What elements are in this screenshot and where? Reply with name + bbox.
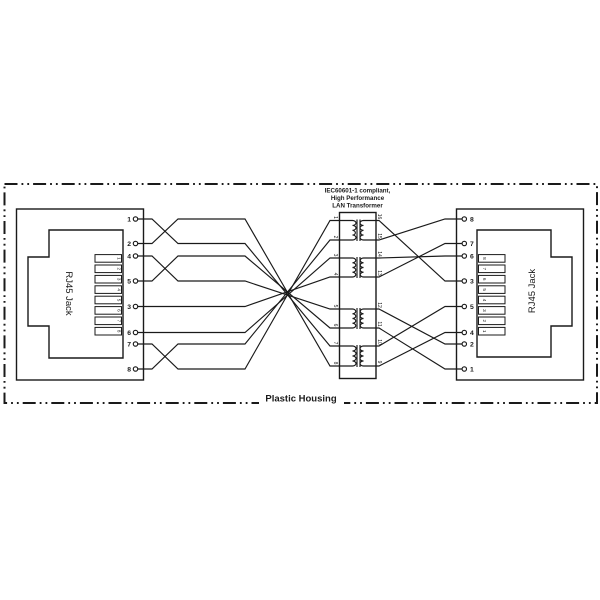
right-slot-number-5: 5 bbox=[482, 288, 487, 291]
left-slot-number-7: 7 bbox=[117, 320, 122, 323]
svg-text:2: 2 bbox=[332, 236, 338, 239]
core-lines bbox=[357, 220, 360, 242]
title-line-2: High Performance bbox=[331, 195, 385, 202]
right-jack-terminal-numbers: 8 7 6 3 5 4 2 1 bbox=[470, 216, 474, 373]
left-slot-number-8: 8 bbox=[117, 330, 122, 333]
core-lines bbox=[357, 308, 360, 329]
left-slot-number-1: 1 bbox=[117, 257, 122, 260]
svg-text:1: 1 bbox=[332, 216, 338, 219]
title-line-1: IEC60601-1 compliant, bbox=[325, 188, 391, 195]
right-wiring bbox=[376, 219, 462, 369]
right-terminal-1: 1 bbox=[470, 366, 474, 373]
svg-text:7: 7 bbox=[332, 342, 338, 345]
left-terminal-6: 6 bbox=[127, 330, 131, 337]
left-jack-label: RJ45 Jack bbox=[63, 271, 74, 316]
svg-text:11: 11 bbox=[376, 321, 382, 326]
housing-label: Plastic Housing bbox=[265, 394, 336, 405]
left-terminal-1: 1 bbox=[127, 216, 131, 223]
right-terminal-2: 2 bbox=[470, 341, 474, 348]
right-slot-number-4: 4 bbox=[482, 299, 487, 302]
left-terminal-8: 8 bbox=[127, 366, 131, 373]
left-jack-connector-profile bbox=[28, 230, 123, 358]
right-jack-terminal-pads bbox=[462, 217, 466, 371]
svg-text:9: 9 bbox=[376, 361, 382, 364]
core-lines bbox=[357, 345, 360, 367]
title-line-3: LAN Transformer bbox=[332, 203, 383, 210]
left-slot-number-4: 4 bbox=[117, 288, 122, 291]
left-terminal-3: 3 bbox=[127, 304, 131, 311]
transformer-coil-4 bbox=[340, 345, 377, 367]
right-rj45-jack: RJ45 Jack 8 7 6 5 4 3 2 1 8 7 6 3 5 bbox=[457, 209, 584, 380]
right-jack-label: RJ45 Jack bbox=[527, 269, 538, 314]
plastic-housing-outline bbox=[5, 184, 598, 403]
left-jack-terminal-pads bbox=[133, 217, 137, 371]
right-jack-outer-box bbox=[457, 209, 584, 380]
left-slot-number-2: 2 bbox=[117, 268, 122, 271]
transformer-box bbox=[340, 213, 377, 379]
lan-transformer: 1 2 3 4 5 6 7 8 16 15 14 13 12 11 10 9 bbox=[332, 213, 382, 379]
right-terminal-6: 6 bbox=[470, 253, 474, 260]
left-jack-pin-slots: 1 2 3 4 5 6 7 8 bbox=[95, 255, 122, 335]
left-jack-outer-box bbox=[17, 209, 144, 380]
svg-text:3: 3 bbox=[332, 254, 338, 257]
svg-text:14: 14 bbox=[376, 251, 382, 257]
svg-text:4: 4 bbox=[332, 273, 338, 276]
right-slot-number-8: 8 bbox=[482, 257, 487, 260]
housing-label-group: Plastic Housing bbox=[259, 391, 344, 405]
left-rj45-jack: RJ45 Jack 1 2 3 4 5 6 7 8 1 2 4 5 3 bbox=[17, 209, 144, 380]
lan-transformer-schematic: IEC60601-1 compliant, High Performance L… bbox=[0, 0, 600, 600]
svg-text:15: 15 bbox=[376, 233, 382, 239]
left-jack-terminal-numbers: 1 2 4 5 3 6 7 8 bbox=[127, 216, 131, 373]
schematic-page: IEC60601-1 compliant, High Performance L… bbox=[0, 0, 600, 600]
right-terminal-3: 3 bbox=[470, 278, 474, 285]
svg-text:13: 13 bbox=[376, 270, 382, 276]
svg-text:6: 6 bbox=[332, 324, 338, 327]
left-terminal-4: 4 bbox=[127, 253, 131, 260]
transformer-title: IEC60601-1 compliant, High Performance L… bbox=[325, 188, 391, 210]
transformer-left-pin-numbers: 1 2 3 4 5 6 7 8 bbox=[332, 216, 338, 365]
svg-text:12: 12 bbox=[376, 302, 382, 308]
right-slot-number-3: 3 bbox=[482, 309, 487, 312]
svg-text:5: 5 bbox=[332, 305, 338, 308]
right-slot-number-7: 7 bbox=[482, 268, 487, 271]
right-terminal-8: 8 bbox=[470, 216, 474, 223]
transformer-coil-1 bbox=[340, 220, 377, 242]
svg-text:16: 16 bbox=[376, 214, 382, 220]
right-terminal-7: 7 bbox=[470, 241, 474, 248]
right-slot-number-1: 1 bbox=[482, 330, 487, 333]
transformer-right-pin-numbers: 16 15 14 13 12 11 10 9 bbox=[376, 214, 382, 364]
left-slot-number-5: 5 bbox=[117, 299, 122, 302]
right-slot-number-2: 2 bbox=[482, 320, 487, 323]
left-wiring bbox=[138, 219, 340, 369]
right-jack-pin-slots: 8 7 6 5 4 3 2 1 bbox=[479, 255, 506, 335]
left-slot-number-6: 6 bbox=[117, 309, 122, 312]
right-slot-number-6: 6 bbox=[482, 278, 487, 281]
transformer-coil-3 bbox=[340, 308, 377, 329]
transformer-coil-2 bbox=[340, 257, 377, 278]
svg-text:8: 8 bbox=[332, 362, 338, 365]
left-terminal-2: 2 bbox=[127, 241, 131, 248]
left-terminal-7: 7 bbox=[127, 341, 131, 348]
core-lines bbox=[357, 257, 360, 278]
left-terminal-5: 5 bbox=[127, 278, 131, 285]
left-slot-number-3: 3 bbox=[117, 278, 122, 281]
right-terminal-5: 5 bbox=[470, 304, 474, 311]
right-terminal-4: 4 bbox=[470, 330, 474, 337]
